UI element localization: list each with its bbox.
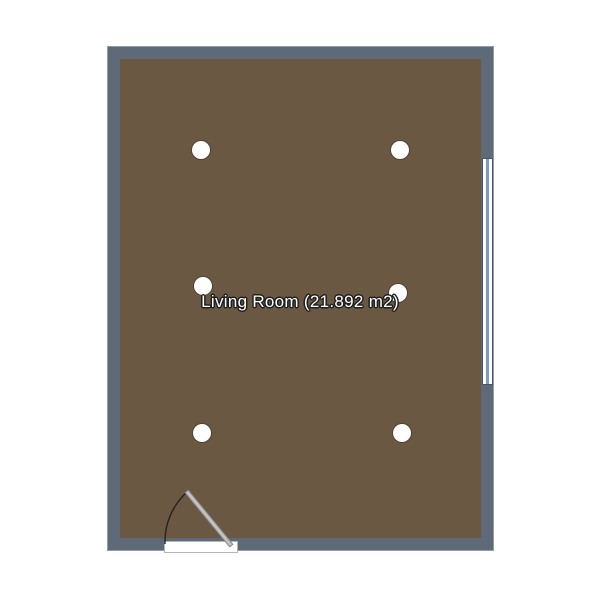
room-label: Living Room (21.892 m2) xyxy=(201,292,399,312)
ceiling-light-dot[interactable] xyxy=(193,424,211,442)
ceiling-light-dot[interactable] xyxy=(393,424,411,442)
ceiling-light-dot[interactable] xyxy=(192,141,210,159)
ceiling-light-dot[interactable] xyxy=(391,141,409,159)
floor-plan-canvas: Living Room (21.892 m2) xyxy=(0,0,600,600)
